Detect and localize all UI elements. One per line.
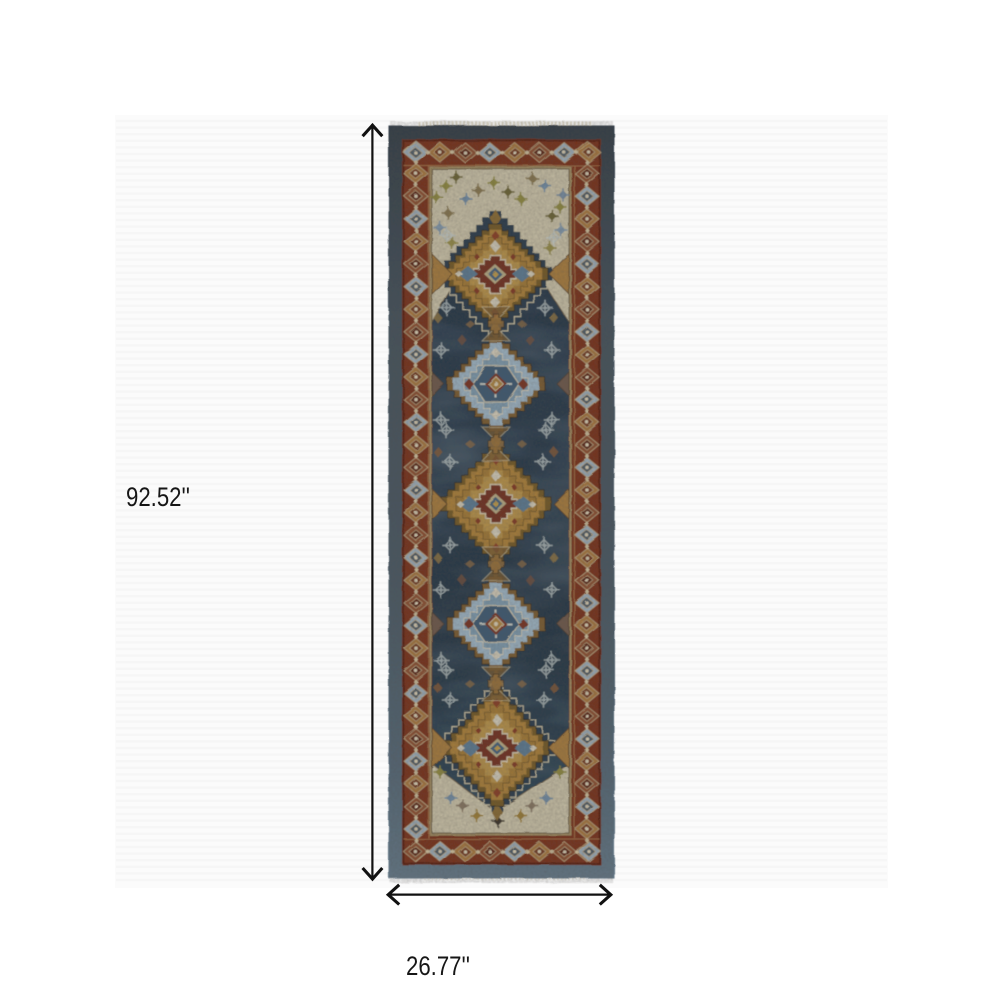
svg-text:26.77'': 26.77'' (406, 951, 470, 981)
svg-text:92.52'': 92.52'' (126, 482, 190, 512)
